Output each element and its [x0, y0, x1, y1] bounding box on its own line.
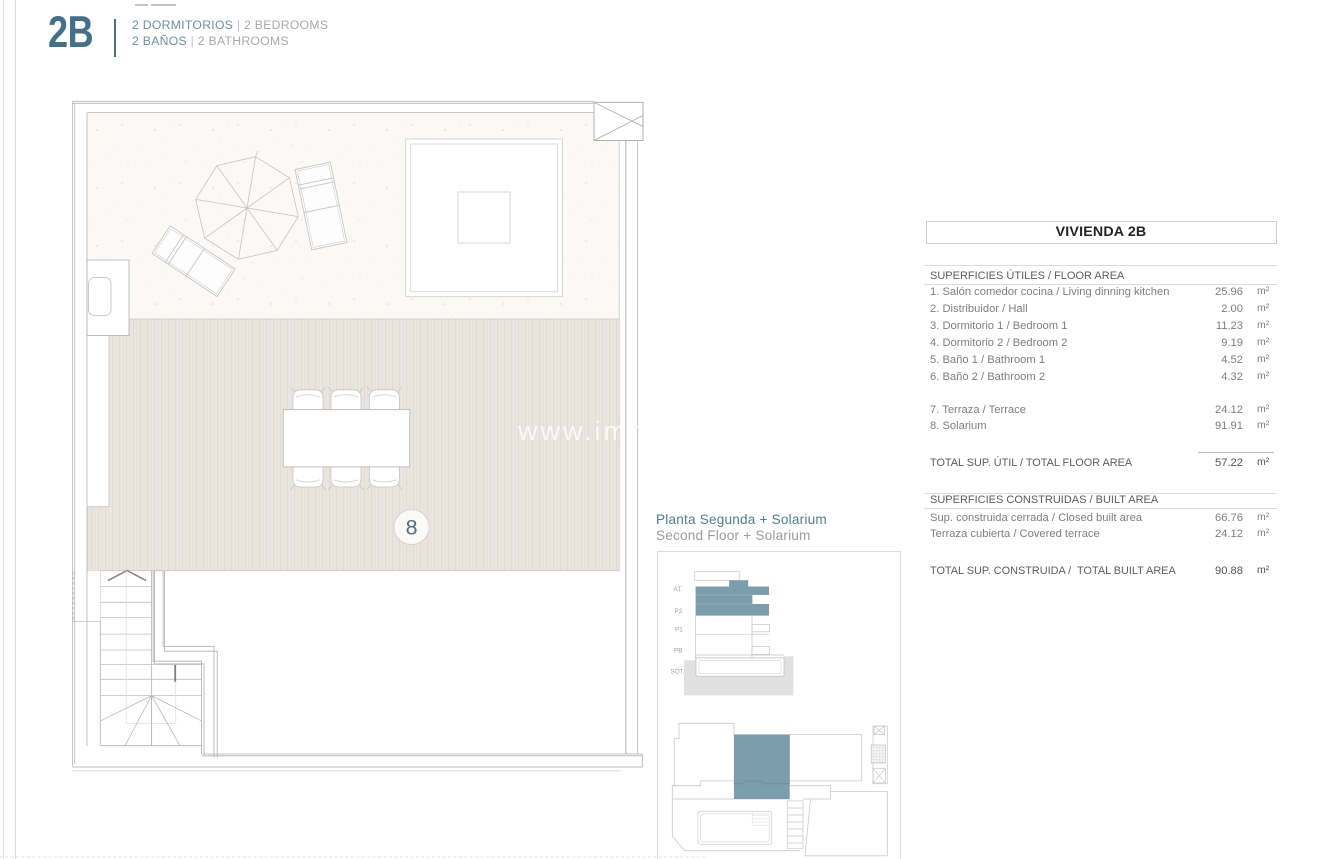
svg-text:www.imm: www.imm	[517, 416, 655, 446]
svg-text:8: 8	[406, 516, 418, 540]
